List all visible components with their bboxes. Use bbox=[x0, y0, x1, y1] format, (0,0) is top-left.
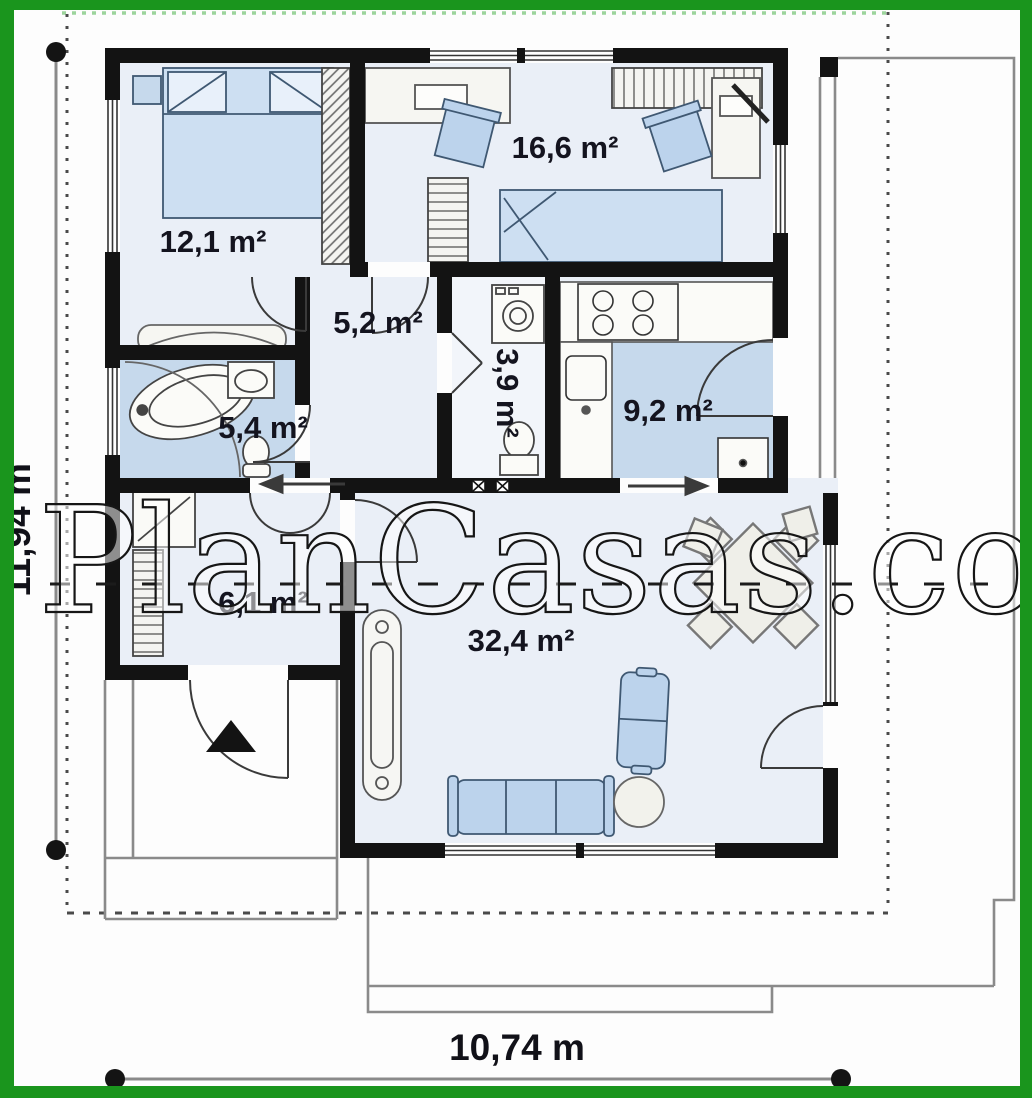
plan-svg: 11,94 m 10,74 m bbox=[14, 10, 1020, 1086]
window-left-bedroom bbox=[105, 100, 120, 252]
height-dimension-label: 11,94 m bbox=[14, 463, 38, 597]
label-bedroom-second: 16,6 m² bbox=[512, 130, 619, 165]
floor-plan-image: 11,94 m 10,74 m bbox=[0, 0, 1032, 1098]
window-bottom-living bbox=[445, 843, 715, 858]
dimension-line-height: 11,94 m bbox=[14, 42, 66, 860]
label-bathroom: 5,4 m² bbox=[218, 410, 308, 445]
width-dimension-label: 10,74 m bbox=[449, 1027, 585, 1068]
label-bedroom-main: 12,1 m² bbox=[160, 224, 267, 259]
entrance-porch-outline bbox=[105, 680, 337, 919]
window-left-bathroom bbox=[105, 368, 120, 455]
label-kitchen: 9,2 m² bbox=[623, 393, 713, 428]
watermark-text: PlanCasas.com bbox=[38, 475, 1020, 647]
window-top-bedroom2 bbox=[430, 48, 613, 63]
plan-paper: 11,94 m 10,74 m bbox=[14, 10, 1020, 1086]
window-right-bedroom2 bbox=[773, 145, 788, 233]
dimension-line-width: 10,74 m bbox=[105, 1027, 851, 1086]
label-utility: 3,9 m² bbox=[490, 348, 525, 438]
label-hall: 5,2 m² bbox=[333, 305, 423, 340]
entrance-arrow-icon bbox=[206, 720, 256, 752]
